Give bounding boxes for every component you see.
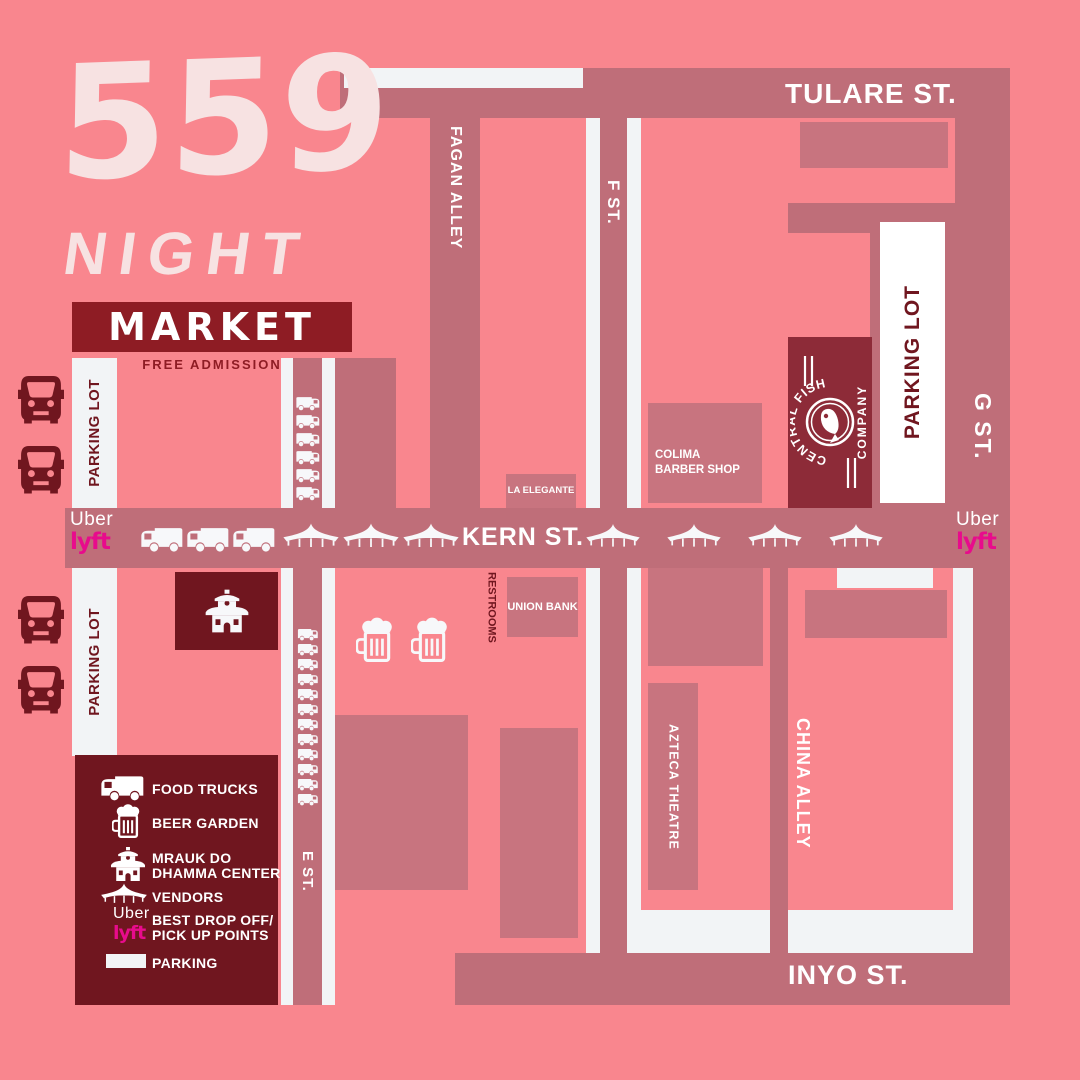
central-fish-logo: CENTRAL FISH COMPANY bbox=[790, 340, 870, 504]
vendor-tent-icon bbox=[747, 519, 803, 557]
parking-lot-label: PARKING LOT bbox=[87, 608, 102, 716]
beer-garden bbox=[356, 616, 453, 666]
kern-food-trucks bbox=[140, 525, 275, 554]
mrauk-do-dhamma-center-block bbox=[175, 572, 278, 650]
food-truck-icon bbox=[296, 643, 320, 656]
legend-parking-swatch bbox=[106, 954, 146, 968]
vendor-tent-icon bbox=[828, 519, 884, 557]
central-fish-company-text: COMPANY bbox=[855, 385, 869, 459]
g-street-label: G ST. bbox=[971, 393, 994, 461]
restrooms-label-wrap: RESTROOMS bbox=[480, 570, 502, 644]
fagan-alley-label: FAGAN ALLEY bbox=[447, 126, 463, 249]
car-icon bbox=[18, 368, 64, 430]
kern-street-label: KERN ST. bbox=[462, 525, 584, 550]
food-truck-icon bbox=[186, 525, 229, 554]
f-street-strip-se bbox=[627, 568, 641, 953]
food-truck-icon bbox=[140, 525, 183, 554]
food-truck-icon bbox=[232, 525, 275, 554]
colima-label: COLIMA BARBER SHOP bbox=[655, 450, 740, 476]
food-truck-icon bbox=[296, 748, 320, 761]
food-truck-icon bbox=[296, 468, 320, 483]
china-alley-label: CHINA ALLEY bbox=[794, 718, 812, 849]
e-street-strip-nw bbox=[281, 358, 293, 508]
beer-mug-icon bbox=[112, 803, 144, 841]
parking-lot-left-south: PARKING LOT bbox=[72, 568, 117, 756]
parking-lot-label: PARKING LOT bbox=[87, 379, 102, 487]
food-truck-icon bbox=[296, 486, 320, 501]
la-elegante-label: LA ELEGANTE bbox=[508, 486, 575, 496]
tulare-street-label: TULARE ST. bbox=[785, 80, 957, 108]
legend-vendors-label: VENDORS bbox=[152, 889, 223, 905]
northeast-slab-notch bbox=[788, 233, 870, 337]
vendor-tent-icon bbox=[342, 519, 400, 557]
e-street-strip-ne bbox=[322, 358, 335, 508]
kern-vendor-tents-west bbox=[282, 519, 460, 557]
building-east-of-china-alley bbox=[805, 590, 947, 638]
market-title: MARKET bbox=[108, 308, 316, 346]
e-street-trucks-north bbox=[296, 396, 320, 501]
food-truck-icon bbox=[296, 396, 320, 411]
dropoff-cars-north bbox=[18, 368, 64, 500]
food-truck-icon bbox=[296, 778, 320, 791]
g-street-label-wrap: G ST. bbox=[955, 372, 1010, 482]
uber-logo: Uber bbox=[113, 906, 150, 922]
building-tulare-frontage bbox=[800, 122, 948, 168]
beer-mug-icon bbox=[356, 616, 398, 666]
title-night: NIGHT bbox=[60, 224, 315, 284]
f-street-label-wrap: F ST. bbox=[600, 162, 627, 242]
restrooms-label: RESTROOMS bbox=[486, 572, 497, 643]
building-la-elegante: LA ELEGANTE bbox=[506, 474, 576, 508]
building-azteca-theatre: AZTECA THEATRE bbox=[648, 683, 698, 890]
inyo-street-label: INYO ST. bbox=[788, 962, 909, 989]
vendor-tent-icon bbox=[585, 519, 641, 557]
street-inyo bbox=[455, 953, 1010, 1005]
central-fish-company-block: CENTRAL FISH COMPANY bbox=[788, 337, 872, 508]
food-truck-icon bbox=[296, 658, 320, 671]
e-street-strip-sw bbox=[281, 568, 293, 1005]
night-market-map: LA ELEGANTE UNION BANK AZTECA THEATRE CO… bbox=[0, 0, 1080, 1080]
food-truck-icon bbox=[296, 733, 320, 746]
lyft-logo: lyft bbox=[70, 531, 113, 554]
pagoda-icon bbox=[108, 847, 148, 881]
car-icon bbox=[18, 588, 64, 650]
china-alley-label-wrap: CHINA ALLEY bbox=[786, 718, 820, 848]
f-street-strip-ne bbox=[627, 118, 641, 508]
fagan-alley-label-wrap: FAGAN ALLEY bbox=[430, 118, 480, 258]
g-street-parking-strip bbox=[953, 568, 973, 953]
free-admission-label: FREE ADMISSION bbox=[72, 356, 352, 374]
building-kern-china-corner bbox=[648, 568, 763, 666]
azteca-theatre-label: AZTECA THEATRE bbox=[667, 724, 680, 850]
food-truck-icon bbox=[296, 414, 320, 429]
vendor-tent-icon bbox=[282, 519, 340, 557]
f-street-strip-sw bbox=[586, 568, 600, 953]
kern-south-parking-strip bbox=[837, 568, 933, 588]
market-banner: MARKET bbox=[72, 302, 352, 352]
legend-dhamma-label-1: MRAUK DO bbox=[152, 850, 231, 866]
e-street-strip-se bbox=[322, 568, 335, 1005]
uber-logo: Uber bbox=[70, 510, 113, 529]
legend-rideshare-icons: Uber lyft bbox=[113, 906, 150, 943]
lyft-logo: lyft bbox=[113, 924, 150, 943]
legend-dhamma-label-2: DHAMMA CENTER bbox=[152, 865, 281, 881]
car-icon bbox=[18, 438, 64, 500]
legend-food-trucks-label: FOOD TRUCKS bbox=[152, 781, 258, 797]
food-truck-icon bbox=[296, 673, 320, 686]
inyo-parking-strip bbox=[627, 910, 973, 953]
uber-logo: Uber bbox=[956, 510, 999, 529]
legend-dropoff-label-2: PICK UP POINTS bbox=[152, 927, 269, 943]
food-truck-icon bbox=[296, 432, 320, 447]
parking-lot-label: PARKING LOT bbox=[902, 285, 923, 439]
e-street-label: E ST. bbox=[300, 851, 315, 892]
food-truck-icon bbox=[296, 450, 320, 465]
food-truck-icon bbox=[296, 688, 320, 701]
food-truck-icon bbox=[296, 628, 320, 641]
building-south-of-union-bank bbox=[500, 728, 578, 938]
union-bank-label: UNION BANK bbox=[507, 602, 577, 613]
rideshare-west: Uber lyft bbox=[70, 510, 113, 554]
pagoda-icon bbox=[204, 589, 250, 633]
dropoff-cars-south bbox=[18, 588, 64, 720]
beer-mug-icon bbox=[411, 616, 453, 666]
parking-lot-left-north: PARKING LOT bbox=[72, 358, 117, 508]
kern-vendor-tents-east bbox=[585, 519, 884, 557]
title-559: 559 bbox=[57, 34, 392, 204]
rideshare-east: Uber lyft bbox=[956, 510, 999, 554]
legend-parking-label: PARKING bbox=[152, 955, 218, 971]
block-east-of-e-street bbox=[335, 358, 396, 508]
food-truck-icon bbox=[296, 703, 320, 716]
lyft-logo: lyft bbox=[956, 531, 999, 554]
street-f-median-south bbox=[600, 568, 627, 953]
legend-dropoff-label-1: BEST DROP OFF/ bbox=[152, 912, 273, 928]
food-truck-icon bbox=[100, 774, 144, 802]
building-union-bank: UNION BANK bbox=[507, 577, 578, 637]
legend-beer-garden-label: BEER GARDEN bbox=[152, 815, 259, 831]
food-truck-icon bbox=[296, 718, 320, 731]
e-street-label-wrap: E ST. bbox=[293, 836, 322, 906]
car-icon bbox=[18, 658, 64, 720]
vendor-tent-icon bbox=[666, 519, 722, 557]
parking-lot-east: PARKING LOT bbox=[880, 222, 945, 503]
food-truck-icon bbox=[296, 763, 320, 776]
f-street-label: F ST. bbox=[605, 180, 622, 225]
building-southwest-square bbox=[335, 715, 468, 890]
e-street-trucks-south bbox=[296, 628, 320, 806]
f-street-strip-nw bbox=[586, 118, 600, 508]
food-truck-icon bbox=[296, 793, 320, 806]
vendor-tent-icon bbox=[402, 519, 460, 557]
